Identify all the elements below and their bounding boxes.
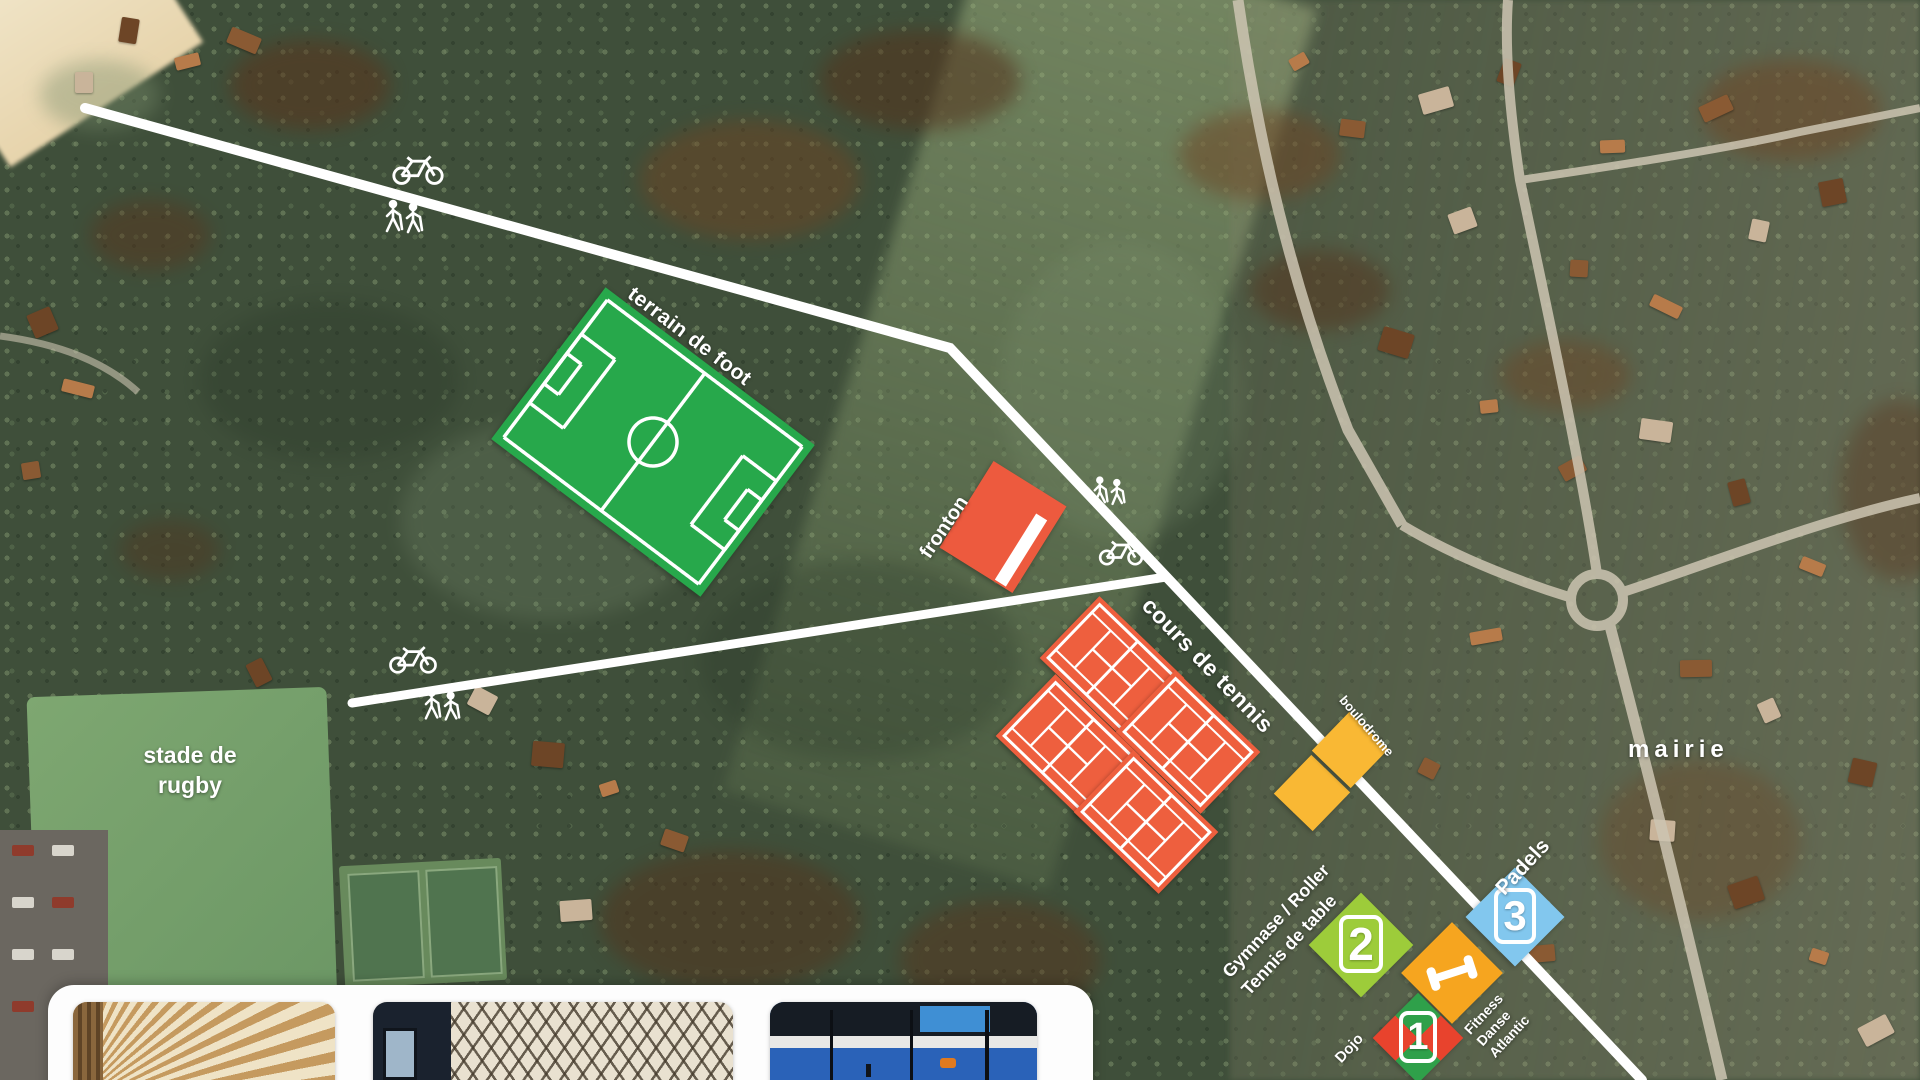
player — [866, 1064, 871, 1077]
hall-ceiling — [770, 1002, 1037, 1036]
marker-3-number[interactable]: 3 — [1494, 888, 1536, 944]
post — [985, 1010, 989, 1080]
lattice-wall — [451, 1002, 733, 1080]
court-wall — [770, 1036, 1037, 1048]
blue-panel — [920, 1006, 990, 1032]
marker-2-digit: 2 — [1348, 917, 1374, 971]
post — [910, 1010, 913, 1080]
hikers-icon — [1090, 475, 1130, 509]
bicycle-icon — [386, 639, 440, 675]
rugby-line-2: rugby — [95, 770, 285, 800]
rugby-label: stade de rugby — [95, 740, 285, 800]
dark-doorway — [373, 1002, 451, 1080]
hikers-icon — [421, 687, 465, 725]
trail-main — [85, 108, 1642, 1080]
padel-court-photo[interactable] — [770, 1002, 1037, 1080]
aerial-sports-map: terrain de foot fronton — [0, 0, 1920, 1080]
wood-hall-photo[interactable] — [73, 1002, 335, 1080]
post — [830, 1010, 833, 1080]
window — [383, 1028, 417, 1080]
bench — [940, 1058, 956, 1068]
bicycle-icon — [1096, 533, 1146, 567]
bicycle-icon — [389, 147, 447, 187]
rugby-line-1: stade de — [95, 740, 285, 770]
hikers-icon — [382, 198, 428, 238]
marker-1-digit: 1 — [1407, 1016, 1428, 1059]
marker-1-number[interactable]: 1 — [1399, 1011, 1437, 1063]
marker-2-number[interactable]: 2 — [1339, 915, 1383, 973]
lattice-gym-photo[interactable] — [373, 1002, 733, 1080]
wood-beams — [73, 1002, 103, 1080]
mairie-label: mairie — [1628, 736, 1729, 764]
